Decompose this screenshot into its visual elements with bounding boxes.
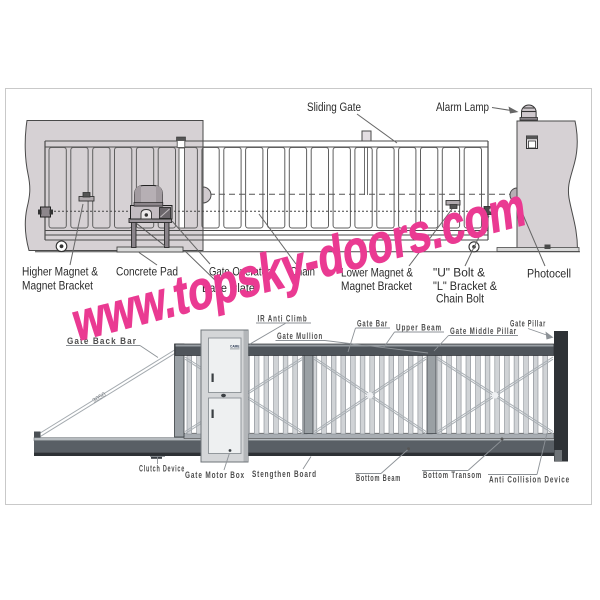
svg-text:Sliding Gate: Sliding Gate (307, 100, 361, 114)
svg-text:Gate Bar: Gate Bar (357, 319, 388, 329)
svg-text:Gate Pillar: Gate Pillar (510, 319, 546, 329)
svg-text:Higher Magnet &: Higher Magnet & (22, 265, 98, 279)
svg-text:Gate Motor Box: Gate Motor Box (185, 470, 245, 480)
svg-text:Clutch Device: Clutch Device (139, 464, 185, 474)
svg-text:Anti Collision Device: Anti Collision Device (489, 475, 570, 485)
svg-text:Bottom Beam: Bottom Beam (356, 473, 401, 483)
svg-text:Upper Beam: Upper Beam (396, 323, 442, 333)
svg-text:Bottom Transom: Bottom Transom (423, 470, 482, 480)
svg-text:Chain Bolt: Chain Bolt (436, 292, 485, 306)
svg-text:CAME: CAME (230, 345, 240, 349)
svg-text:"U" Bolt &: "U" Bolt & (433, 266, 485, 280)
svg-text:Alarm Lamp: Alarm Lamp (436, 100, 489, 114)
svg-text:Photocell: Photocell (527, 267, 571, 281)
svg-text:Gate Middle Pillar: Gate Middle Pillar (450, 326, 517, 336)
svg-text:Gate Mullion: Gate Mullion (277, 331, 323, 341)
svg-text:Stengthen Board: Stengthen Board (252, 469, 317, 479)
svg-text:IR Anti Climb: IR Anti Climb (258, 314, 308, 324)
